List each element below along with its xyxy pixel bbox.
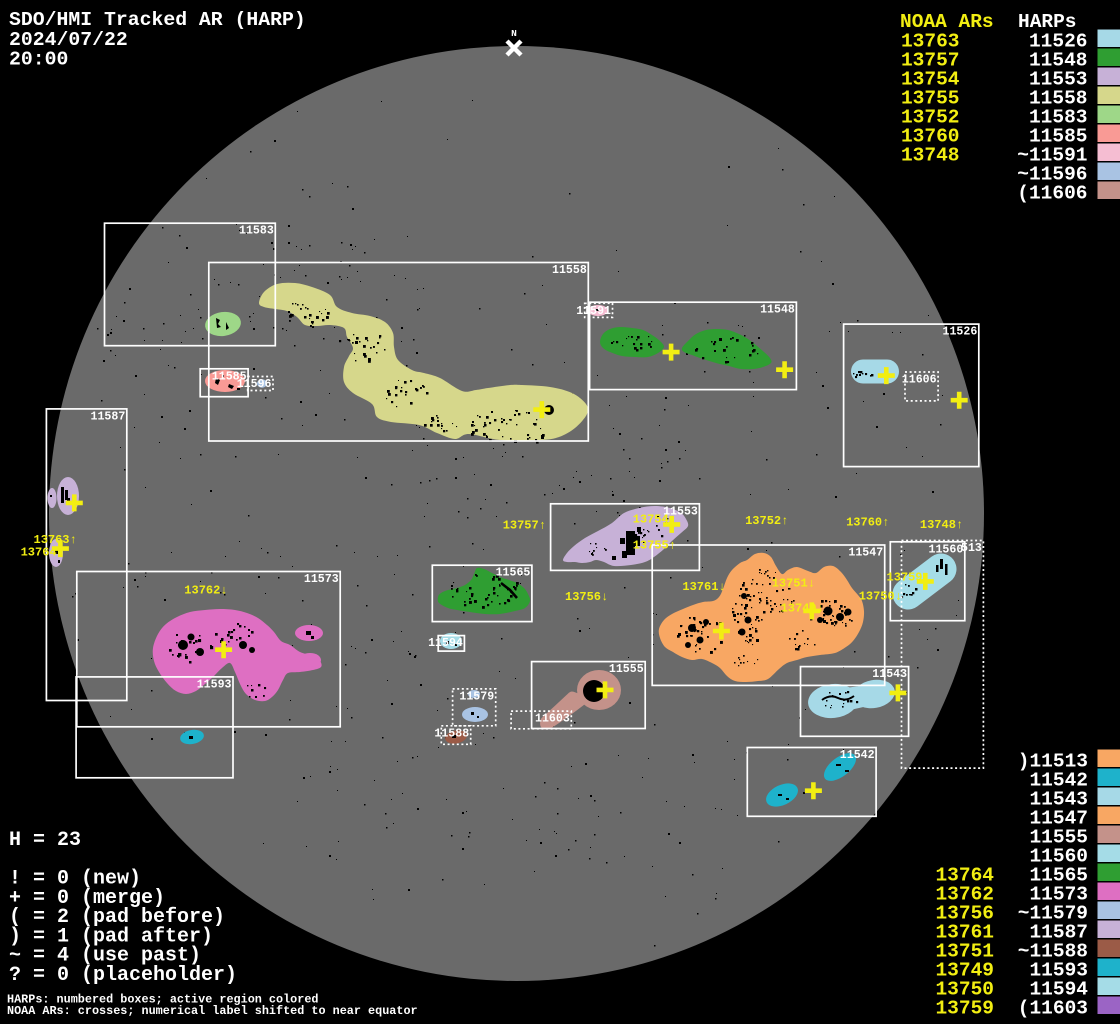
svg-text:13755↑: 13755↑ <box>633 538 676 552</box>
svg-text:11542: 11542 <box>840 749 875 762</box>
svg-text:13757↑: 13757↑ <box>503 519 546 533</box>
svg-text:11606: 11606 <box>902 374 937 387</box>
svg-text:11555: 11555 <box>609 663 644 676</box>
svg-text:11591: 11591 <box>576 305 611 318</box>
svg-text:13762↓: 13762↓ <box>184 584 227 598</box>
svg-text:11579: 11579 <box>459 690 494 703</box>
svg-text:13761↓: 13761↓ <box>682 580 725 594</box>
svg-text:11543: 11543 <box>872 668 907 681</box>
svg-text:H = 23: H = 23 <box>9 829 81 852</box>
svg-text:11596: 11596 <box>237 378 272 391</box>
svg-text:NOAA ARs: crosses; numerical l: NOAA ARs: crosses; numerical label shift… <box>7 1004 418 1018</box>
svg-text:11573: 11573 <box>304 573 339 586</box>
svg-text:? = 0 (placeholder): ? = 0 (placeholder) <box>9 964 237 987</box>
svg-text:13748: 13748 <box>901 145 960 167</box>
svg-text:(11603: (11603 <box>1018 998 1088 1020</box>
svg-text:11526: 11526 <box>943 326 978 339</box>
svg-text:N: N <box>511 28 517 39</box>
svg-text:13748↑: 13748↑ <box>920 518 963 532</box>
svg-text:SDO/HMI Tracked AR (HARP): SDO/HMI Tracked AR (HARP) <box>9 9 306 31</box>
svg-text:11594: 11594 <box>428 637 463 650</box>
svg-text:11583: 11583 <box>239 225 274 238</box>
svg-text:13750↓: 13750↓ <box>859 590 902 604</box>
svg-text:13756↓: 13756↓ <box>565 590 608 604</box>
svg-text:11558: 11558 <box>552 264 587 277</box>
svg-text:13760↑: 13760↑ <box>846 515 889 529</box>
svg-text:11560: 11560 <box>929 543 964 556</box>
svg-text:13751↓: 13751↓ <box>772 576 815 590</box>
svg-text:13759: 13759 <box>935 998 994 1020</box>
svg-text:11587: 11587 <box>91 410 126 423</box>
svg-text:20:00: 20:00 <box>9 49 68 71</box>
svg-text:13752↑: 13752↑ <box>745 514 788 528</box>
svg-text:11548: 11548 <box>760 304 795 317</box>
svg-text:(11606: (11606 <box>1017 183 1087 205</box>
svg-text:11547: 11547 <box>848 547 883 560</box>
svg-text:11603: 11603 <box>535 713 570 726</box>
svg-text:11565: 11565 <box>496 567 531 580</box>
svg-text:11593: 11593 <box>197 678 232 691</box>
svg-text:11588: 11588 <box>434 727 469 740</box>
